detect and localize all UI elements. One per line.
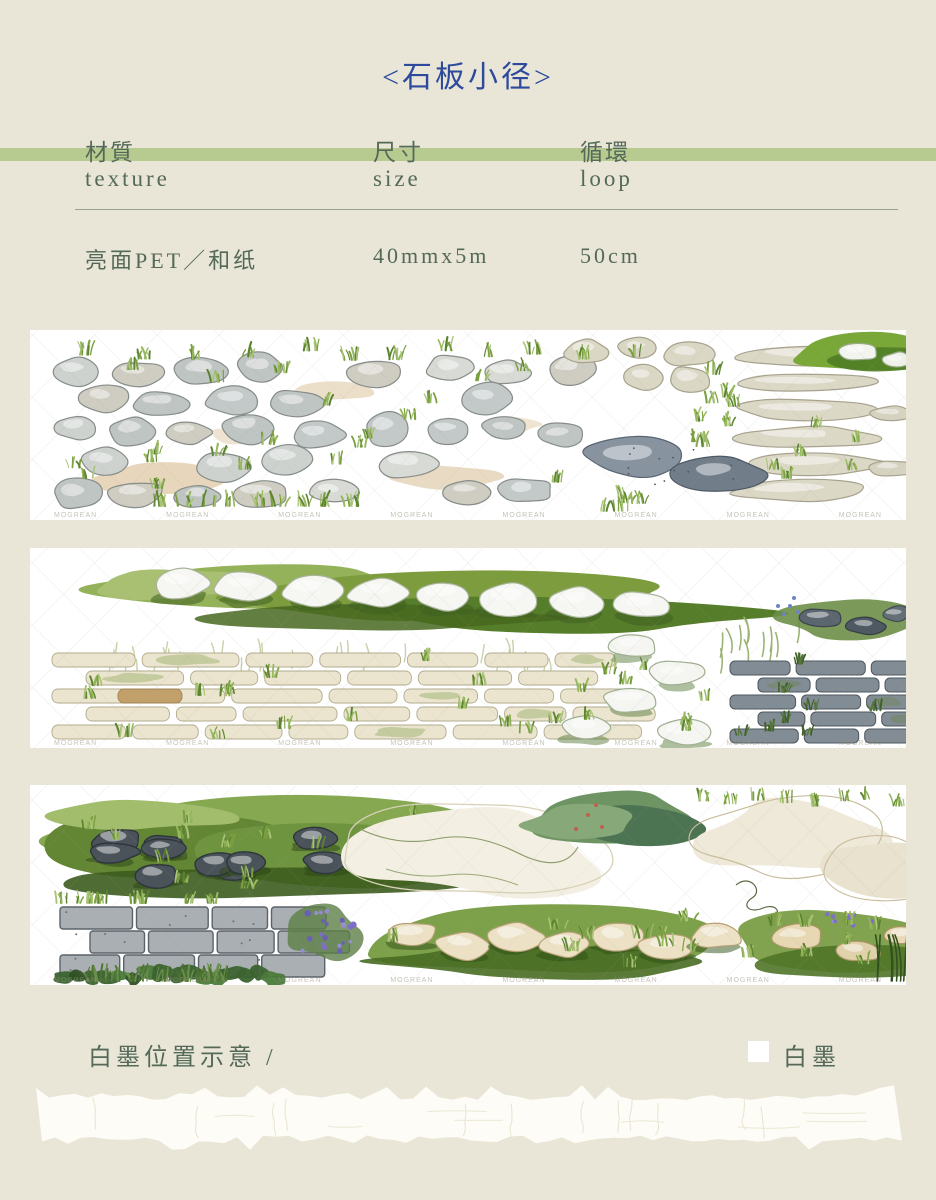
watermark-text: MOGREAN (166, 512, 209, 519)
white-ink-preview (28, 1083, 908, 1153)
watermark-text: MOGREAN (839, 977, 882, 984)
watermark-text: MOGREAN (839, 512, 882, 519)
watermark-text: MOGREAN (502, 740, 545, 747)
tape-sample-strip-2: MOGREANMOGREANMOGREANMOGREANMOGREANMOGRE… (30, 548, 906, 748)
page-title: <石板小径> (0, 52, 936, 96)
spec-label-zh-texture: 材質 (85, 133, 135, 167)
watermark-text: MOGREAN (54, 977, 97, 984)
watermark-text: MOGREAN (727, 512, 770, 519)
watermark-row: MOGREANMOGREANMOGREANMOGREANMOGREANMOGRE… (54, 512, 882, 519)
watermark-row: MOGREANMOGREANMOGREANMOGREANMOGREANMOGRE… (54, 740, 882, 747)
white-ink-heading: 白墨位置示意 / (88, 1037, 277, 1072)
spec-value-loop: 50cm (580, 243, 641, 269)
white-ink-art (28, 1083, 908, 1153)
watermark-row: MOGREANMOGREANMOGREANMOGREANMOGREANMOGRE… (54, 977, 882, 984)
watermark-text: MOGREAN (390, 512, 433, 519)
watermark-text: MOGREAN (727, 977, 770, 984)
watermark-text: MOGREAN (278, 512, 321, 519)
watermark-text: MOGREAN (839, 740, 882, 747)
white-ink-swatch (748, 1041, 769, 1062)
spec-value-texture: 亮面PET／和纸 (85, 243, 258, 275)
watermark-text: MOGREAN (278, 740, 321, 747)
watermark-text: MOGREAN (615, 740, 658, 747)
tape-art-1 (30, 330, 906, 520)
watermark-text: MOGREAN (615, 512, 658, 519)
watermark-text: MOGREAN (166, 977, 209, 984)
accent-bar (0, 148, 936, 161)
spec-label-zh-loop: 循環 (580, 133, 630, 167)
watermark-text: MOGREAN (502, 512, 545, 519)
spec-label-en-loop: loop (580, 166, 633, 192)
spec-label-en-size: size (373, 166, 421, 192)
tape-art-2 (30, 548, 906, 748)
spec-divider (75, 209, 898, 210)
tape-art-3 (30, 785, 906, 985)
tape-sample-strip-3: MOGREANMOGREANMOGREANMOGREANMOGREANMOGRE… (30, 785, 906, 985)
watermark-text: MOGREAN (615, 977, 658, 984)
watermark-text: MOGREAN (278, 977, 321, 984)
watermark-text: MOGREAN (502, 977, 545, 984)
tape-sample-strip-1: MOGREANMOGREANMOGREANMOGREANMOGREANMOGRE… (30, 330, 906, 520)
white-ink-label: 白墨 (783, 1037, 841, 1072)
spec-value-size: 40mmx5m (373, 243, 489, 269)
watermark-text: MOGREAN (54, 740, 97, 747)
watermark-text: MOGREAN (54, 512, 97, 519)
watermark-text: MOGREAN (390, 977, 433, 984)
watermark-text: MOGREAN (166, 740, 209, 747)
spec-label-zh-size: 尺寸 (373, 133, 423, 167)
watermark-text: MOGREAN (390, 740, 433, 747)
watermark-text: MOGREAN (727, 740, 770, 747)
spec-label-en-texture: texture (85, 166, 170, 192)
